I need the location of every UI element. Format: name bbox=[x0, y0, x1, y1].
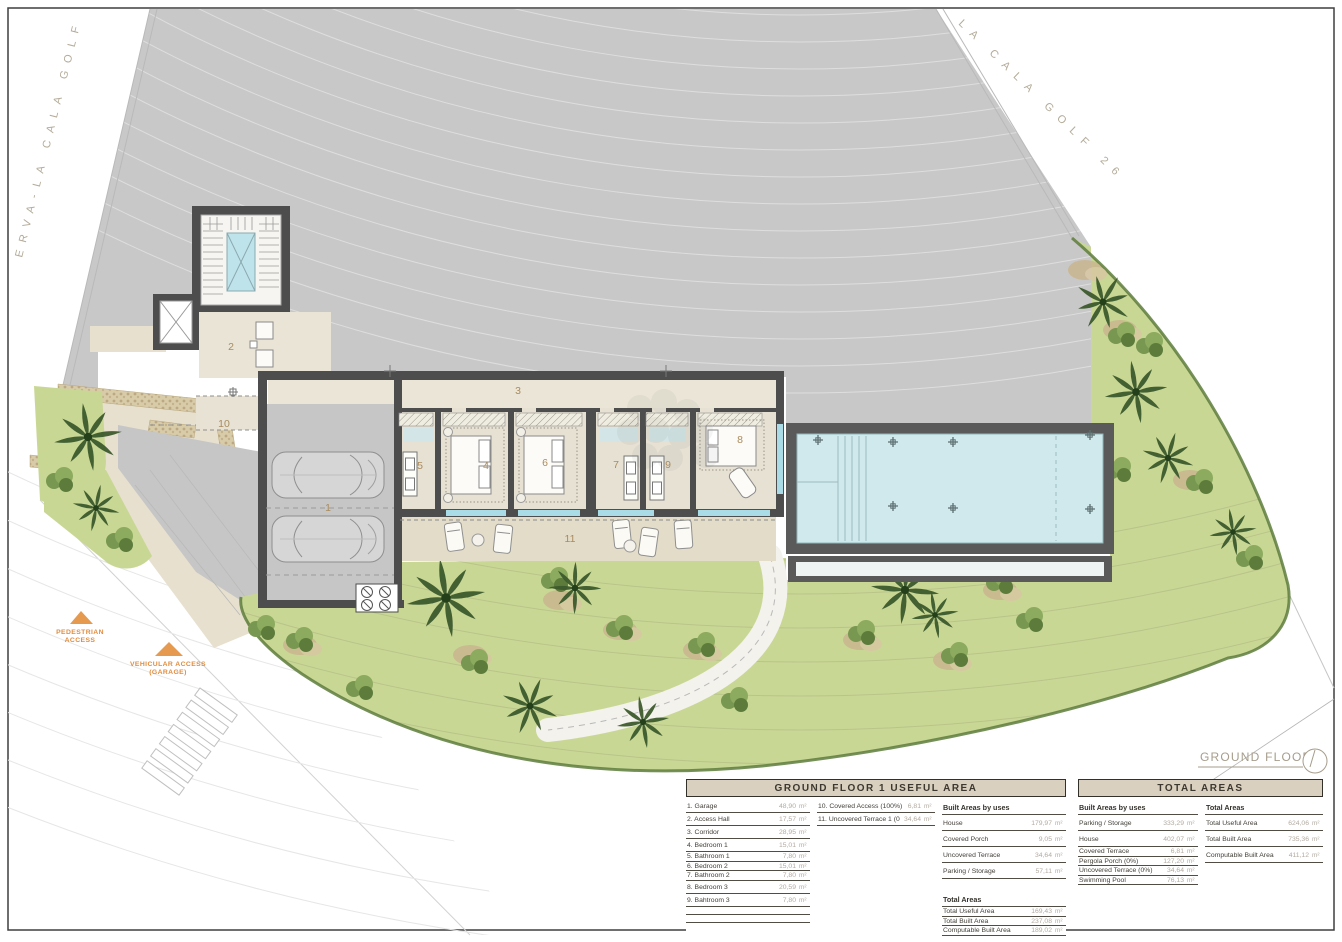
car bbox=[272, 516, 384, 562]
plan-title: GROUND FLOOR 1 bbox=[1198, 749, 1327, 773]
area-unit: m² bbox=[1312, 852, 1322, 859]
table-row: Total Useful Area624,06m² bbox=[1205, 815, 1323, 831]
area-label: Total Built Area bbox=[943, 918, 1027, 925]
table-row: 6. Bedroom 215,01m² bbox=[686, 862, 810, 872]
area-unit: m² bbox=[1187, 836, 1197, 843]
area-value: 7,80 bbox=[783, 872, 796, 879]
vanity bbox=[403, 452, 417, 496]
area-unit: m² bbox=[799, 829, 809, 836]
room-number: 11 bbox=[565, 533, 576, 545]
table-row: House179,97m² bbox=[942, 815, 1066, 831]
utility-box bbox=[356, 584, 398, 612]
access-markers: PEDESTRIAN ACCESS VEHICULAR ACCESS (GARA… bbox=[56, 611, 206, 676]
area-value: 17,57 bbox=[779, 816, 796, 823]
pedestrian-access-label: PEDESTRIAN bbox=[56, 629, 104, 636]
table-row: Computable Built Area189,02m² bbox=[942, 926, 1066, 936]
area-value: 7,80 bbox=[783, 897, 796, 904]
area-unit: m² bbox=[1055, 927, 1065, 934]
table-row: 8. Bedroom 320,59m² bbox=[686, 881, 810, 894]
area-label: House bbox=[943, 820, 1027, 827]
area-label: 5. Bathroom 1 bbox=[687, 853, 779, 860]
total-areas-table-title: TOTAL AREAS bbox=[1078, 779, 1323, 797]
total-areas-subhead: Total Areas bbox=[1205, 800, 1323, 815]
table-row: 4. Bedroom 115,01m² bbox=[686, 839, 810, 852]
room-areas-column: 1. Garage48,90m²2. Access Hall17,57m²3. … bbox=[686, 800, 810, 936]
area-label: Uncovered Terrace (0%) bbox=[1079, 867, 1163, 874]
area-label: Total Built Area bbox=[1206, 836, 1284, 843]
area-unit: m² bbox=[1187, 867, 1197, 874]
area-unit: m² bbox=[799, 816, 809, 823]
room-number: 10 bbox=[218, 418, 230, 430]
area-value: 179,97 bbox=[1031, 820, 1052, 827]
area-label: Computable Built Area bbox=[1206, 852, 1285, 859]
area-unit: m² bbox=[1312, 836, 1322, 843]
area-unit: m² bbox=[799, 803, 809, 810]
area-unit: m² bbox=[1187, 877, 1197, 884]
area-value: 127,20 bbox=[1163, 858, 1184, 865]
area-value: 624,06 bbox=[1288, 820, 1309, 827]
area-label: Parking / Storage bbox=[943, 868, 1031, 875]
area-label: 3. Corridor bbox=[687, 829, 775, 836]
area-value: 34,64 bbox=[1035, 852, 1052, 859]
area-value: 6,81 bbox=[908, 803, 921, 810]
extra-areas-column: 10. Covered Access (100%)6,81m²11. Uncov… bbox=[817, 800, 935, 936]
area-label: Uncovered Terrace bbox=[943, 852, 1031, 859]
table-row: Total Useful Area169,43m² bbox=[942, 907, 1066, 917]
table-row: 1. Garage48,90m² bbox=[686, 800, 810, 813]
svg-text:(GARAGE): (GARAGE) bbox=[149, 669, 187, 676]
area-unit: m² bbox=[924, 816, 934, 823]
room-number: 7 bbox=[613, 459, 619, 471]
area-label: Covered Terrace bbox=[1079, 848, 1167, 855]
road-label-left: ERVA-LA CALA GOLF bbox=[13, 17, 84, 258]
covered-access bbox=[196, 396, 266, 430]
area-label: Computable Built Area bbox=[943, 927, 1027, 934]
area-value: 169,43 bbox=[1031, 908, 1052, 915]
area-unit: m² bbox=[1187, 820, 1197, 827]
north-indicator bbox=[1303, 749, 1327, 773]
area-unit: m² bbox=[1187, 848, 1197, 855]
table-row: Total Built Area735,36m² bbox=[1205, 831, 1323, 847]
room-number: 6 bbox=[542, 457, 548, 469]
area-value: 34,64 bbox=[1167, 867, 1184, 874]
table-row bbox=[686, 915, 810, 923]
table-row: 2. Access Hall17,57m² bbox=[686, 813, 810, 826]
table-row: Total Built Area237,08m² bbox=[942, 917, 1066, 927]
table-row: House402,07m² bbox=[1078, 831, 1198, 847]
table-row: Uncovered Terrace (0%)34,64m² bbox=[1078, 866, 1198, 876]
area-value: 34,64 bbox=[904, 816, 921, 823]
table-row: Parking / Storage333,29m² bbox=[1078, 815, 1198, 831]
area-value: 6,81 bbox=[1171, 848, 1184, 855]
area-value: 9,05 bbox=[1039, 836, 1052, 843]
table-row: Computable Built Area411,12m² bbox=[1205, 847, 1323, 863]
area-value: 57,11 bbox=[1035, 868, 1052, 875]
area-unit: m² bbox=[1055, 868, 1065, 875]
table-row: 7. Bathroom 27,80m² bbox=[686, 871, 810, 881]
table-row: Swimming Pool76,13m² bbox=[1078, 876, 1198, 886]
area-label: Covered Porch bbox=[943, 836, 1035, 843]
area-unit: m² bbox=[799, 842, 809, 849]
swimming-pool bbox=[786, 423, 1114, 582]
area-label: 7. Bathroom 2 bbox=[687, 872, 779, 879]
area-value: 402,07 bbox=[1163, 836, 1184, 843]
area-unit: m² bbox=[1055, 820, 1065, 827]
room-number: 9 bbox=[665, 459, 671, 471]
area-value: 20,59 bbox=[779, 884, 796, 891]
table-row: Pergola Porch (0%)127,20m² bbox=[1078, 857, 1198, 867]
area-unit: m² bbox=[1312, 820, 1322, 827]
area-label: 6. Bedroom 2 bbox=[687, 863, 775, 870]
table-row: Uncovered Terrace34,64m² bbox=[942, 847, 1066, 863]
area-label: 1. Garage bbox=[687, 803, 775, 810]
area-value: 411,12 bbox=[1289, 852, 1309, 859]
table-row: 9. Bahtroom 37,80m² bbox=[686, 894, 810, 907]
area-value: 189,02 bbox=[1031, 927, 1052, 934]
ground-floor-table-title: GROUND FLOOR 1 USEFUL AREA bbox=[686, 779, 1066, 797]
total-totals-column: Total Areas Total Useful Area624,06m²Tot… bbox=[1205, 800, 1323, 885]
vehicular-access-arrow bbox=[155, 642, 183, 656]
area-unit: m² bbox=[799, 884, 809, 891]
room-number: 5 bbox=[417, 460, 423, 472]
area-label: Pergola Porch (0%) bbox=[1079, 858, 1159, 865]
area-unit: m² bbox=[924, 803, 934, 810]
area-value: 76,13 bbox=[1167, 877, 1184, 884]
area-label: House bbox=[1079, 836, 1159, 843]
area-label: 8. Bedroom 3 bbox=[687, 884, 775, 891]
area-value: 28,95 bbox=[779, 829, 796, 836]
room-number: 4 bbox=[483, 460, 489, 472]
built-areas-column: Built Areas by uses House179,97m²Covered… bbox=[942, 800, 1066, 936]
ground-floor-area-table: GROUND FLOOR 1 USEFUL AREA 1. Garage48,9… bbox=[686, 779, 1066, 936]
built-areas-subhead: Built Areas by uses bbox=[942, 800, 1066, 815]
area-value: 237,08 bbox=[1031, 918, 1052, 925]
area-label: Parking / Storage bbox=[1079, 820, 1159, 827]
area-unit: m² bbox=[1055, 908, 1065, 915]
area-value: 333,29 bbox=[1163, 820, 1184, 827]
area-value: 7,80 bbox=[783, 853, 796, 860]
area-label: 9. Bahtroom 3 bbox=[687, 897, 779, 904]
area-unit: m² bbox=[799, 853, 809, 860]
area-unit: m² bbox=[1055, 836, 1065, 843]
area-label: Total Useful Area bbox=[943, 908, 1027, 915]
total-built-areas-column: Built Areas by uses Parking / Storage333… bbox=[1078, 800, 1198, 885]
table-row: Covered Terrace6,81m² bbox=[1078, 847, 1198, 857]
site-plan-page: 1234567891011 PEDESTRIAN ACCESS VEHICULA… bbox=[0, 0, 1342, 942]
area-label: Total Useful Area bbox=[1206, 820, 1284, 827]
room-number: 8 bbox=[737, 434, 743, 446]
area-value: 735,36 bbox=[1288, 836, 1309, 843]
table-row: 10. Covered Access (100%)6,81m² bbox=[817, 800, 935, 813]
vehicular-access-label: VEHICULAR ACCESS bbox=[130, 661, 206, 668]
area-label: 11. Uncovered Terrace 1 (0%) bbox=[818, 816, 900, 823]
area-value: 15,01 bbox=[779, 842, 796, 849]
table-row: 11. Uncovered Terrace 1 (0%)34,64m² bbox=[817, 813, 935, 826]
total-areas-subhead: Total Areas bbox=[942, 892, 1066, 907]
area-unit: m² bbox=[799, 897, 809, 904]
area-value: 48,90 bbox=[779, 803, 796, 810]
room-number: 1 bbox=[325, 502, 331, 514]
area-label: 10. Covered Access (100%) bbox=[818, 803, 904, 810]
area-label: 2. Access Hall bbox=[687, 816, 775, 823]
svg-text:ACCESS: ACCESS bbox=[65, 637, 96, 644]
table-row: 3. Corridor28,95m² bbox=[686, 826, 810, 839]
area-label: Swimming Pool bbox=[1079, 877, 1163, 884]
room-number: 3 bbox=[515, 385, 521, 397]
area-unit: m² bbox=[1055, 918, 1065, 925]
table-row: 5. Bathroom 17,80m² bbox=[686, 852, 810, 862]
room-number: 2 bbox=[228, 341, 234, 353]
area-unit: m² bbox=[1187, 858, 1197, 865]
table-row: Covered Porch9,05m² bbox=[942, 831, 1066, 847]
table-row: Parking / Storage57,11m² bbox=[942, 863, 1066, 879]
total-areas-table: TOTAL AREAS Built Areas by uses Parking … bbox=[1078, 779, 1323, 885]
pedestrian-access-arrow bbox=[70, 611, 93, 624]
built-areas-subhead: Built Areas by uses bbox=[1078, 800, 1198, 815]
area-unit: m² bbox=[1055, 852, 1065, 859]
area-value: 15,01 bbox=[779, 863, 796, 870]
area-unit: m² bbox=[799, 872, 809, 879]
area-unit: m² bbox=[799, 863, 809, 870]
table-row bbox=[686, 907, 810, 915]
area-label: 4. Bedroom 1 bbox=[687, 842, 775, 849]
car bbox=[272, 452, 384, 498]
